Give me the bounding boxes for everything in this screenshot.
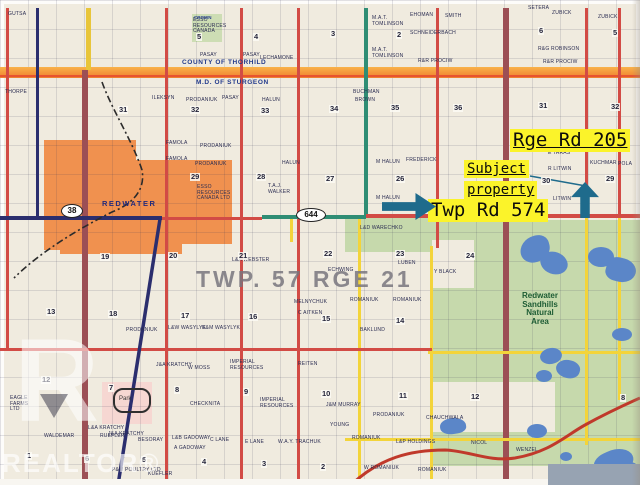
realtor-logo-triangle xyxy=(40,394,68,418)
subject-property-annotation-line1: Subject xyxy=(464,160,529,178)
map-photo: GUTSATHORPEESSO RESOURCES CANADAPASAYPAS… xyxy=(0,0,640,485)
photo-edge-shadow xyxy=(632,0,640,485)
realtor-word-watermark: REALTOR® xyxy=(2,448,160,479)
subject-property-annotation-line2: property xyxy=(464,181,537,199)
photo-bottom-edge xyxy=(0,479,548,485)
highway-644-shield: 644 xyxy=(296,208,326,222)
county-thorhild-label: COUNTY OF THORHILD xyxy=(182,59,266,66)
crown-land-label: CROWN xyxy=(194,15,212,20)
md-sturgeon-label: M.D. OF STURGEON xyxy=(196,79,269,86)
municipal-boundary-dashline xyxy=(14,82,143,278)
photo-corner-gray-band xyxy=(548,464,640,485)
twp-rd-574-annotation: Twp Rd 574 xyxy=(428,199,548,222)
natural-area-label: Redwater Sandhills Natural Area xyxy=(505,292,575,326)
rge-rd-205-annotation: Rge Rd 205 xyxy=(510,129,630,152)
realtor-logo-watermark: R xyxy=(14,322,99,440)
subject-property-pointer-line xyxy=(530,176,586,186)
park-label: Park xyxy=(119,396,131,402)
highway-38-south-road xyxy=(118,219,160,485)
township-range-label: TWP. 57 RGE 21 xyxy=(196,266,413,293)
redwater-town-label: REDWATER xyxy=(102,199,156,208)
highway-38-shield: 38 xyxy=(61,204,83,218)
